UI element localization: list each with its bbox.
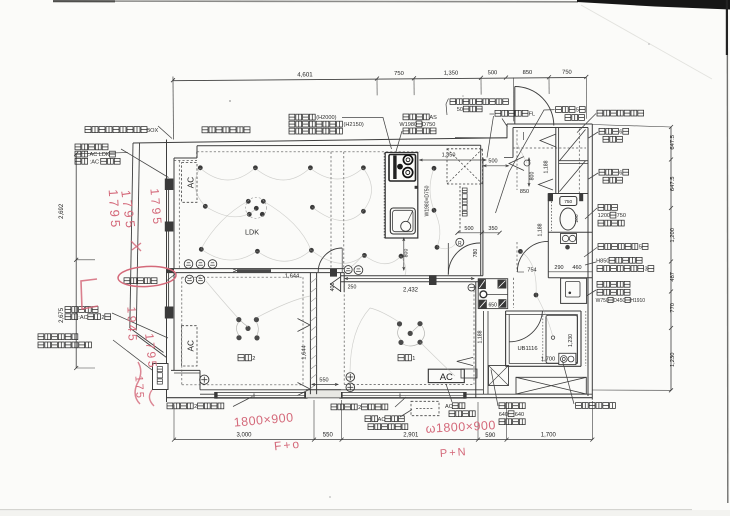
svg-text:(H2150): (H2150) [343,122,363,128]
svg-text:650: 650 [489,302,498,308]
svg-text:1,200: 1,200 [670,228,676,243]
svg-text:780: 780 [473,249,479,258]
svg-text:500: 500 [488,158,497,164]
svg-text:W1980: W1980 [399,122,417,128]
svg-text:2,901: 2,901 [403,433,419,439]
svg-text:647.5: 647.5 [670,135,676,150]
svg-text:487: 487 [670,272,676,282]
svg-text:D450: D450 [613,298,625,304]
svg-text::AC: :AC [90,159,99,165]
svg-text:4,601: 4,601 [297,71,313,78]
svg-text:LDK: LDK [245,227,259,236]
svg-text:647.5: 647.5 [670,177,676,192]
svg-text:640: 640 [499,412,508,418]
svg-text:H850: H850 [596,258,609,264]
svg-text:200: 200 [574,214,580,222]
svg-text:2: 2 [252,356,255,362]
svg-text:3: 3 [644,267,647,273]
svg-text:290: 290 [554,265,563,271]
svg-text:1,350: 1,350 [442,153,456,159]
svg-text:P+N: P+N [440,446,468,460]
svg-text:(H2000): (H2000) [316,115,336,121]
svg-text:750: 750 [394,71,404,77]
svg-text:2: 2 [101,315,104,321]
svg-text::AC: :AC [78,315,87,321]
svg-text:750: 750 [564,199,572,205]
svg-text:W1980×D750: W1980×D750 [424,185,430,216]
svg-text:3,000: 3,000 [236,433,252,439]
svg-text:1945: 1945 [124,306,139,343]
svg-text::AC LDK: :AC LDK [88,152,110,158]
svg-text:1200: 1200 [598,213,610,219]
svg-text:350: 350 [488,226,497,232]
svg-text:750: 750 [617,213,626,219]
svg-text:50: 50 [457,107,463,113]
svg-text:400: 400 [330,283,336,292]
svg-text:500: 500 [488,70,498,76]
svg-text:550: 550 [319,378,328,384]
svg-text:W750: W750 [596,298,609,304]
svg-text:2,675: 2,675 [59,307,65,323]
svg-text:R: R [458,241,462,247]
svg-text:800: 800 [404,249,410,258]
svg-text:1,350: 1,350 [444,71,459,77]
svg-text:1,230: 1,230 [670,353,676,368]
svg-text:500: 500 [464,226,473,232]
svg-text:850: 850 [523,70,533,76]
svg-text:800: 800 [530,172,536,181]
svg-text:2: 2 [194,404,197,410]
svg-text:1: 1 [412,356,415,362]
svg-text:1,188: 1,188 [477,330,483,343]
svg-text:754: 754 [527,268,536,274]
svg-text:2: 2 [358,405,361,411]
svg-text:6: 6 [619,129,622,135]
svg-text:FL: FL [529,111,536,117]
svg-text:5: 5 [576,108,579,114]
svg-text:1,644: 1,644 [285,273,300,279]
svg-text:D750: D750 [422,122,435,128]
svg-text:UB1116: UB1116 [517,346,537,352]
svg-text:2,692: 2,692 [59,203,65,219]
svg-text:750: 750 [562,70,572,76]
svg-text:2,432: 2,432 [403,287,419,293]
svg-text:550: 550 [323,433,334,439]
svg-text:H1910: H1910 [630,298,645,304]
svg-text:640: 640 [515,412,524,418]
svg-text:F+o: F+o [273,437,301,454]
svg-text:1,700: 1,700 [541,433,557,439]
svg-text:AC: AC [440,372,453,383]
svg-text:1,700: 1,700 [541,356,556,362]
svg-text:AC: AC [445,404,453,410]
svg-text:250: 250 [348,285,357,291]
svg-text:590: 590 [485,433,496,439]
svg-text:6: 6 [619,170,622,176]
svg-text:1,188: 1,188 [538,223,544,236]
svg-text:AC: AC [187,340,196,351]
svg-text:AC: AC [378,417,386,423]
svg-text:850: 850 [520,189,529,195]
svg-text:1,644: 1,644 [302,344,308,359]
svg-text:5: 5 [639,245,642,251]
svg-text:AS: AS [429,115,437,121]
svg-text:BOX: BOX [146,128,158,134]
svg-text:1,188: 1,188 [544,160,550,173]
svg-text:AC: AC [187,177,196,188]
svg-text:770: 770 [670,303,676,313]
svg-text:1,230: 1,230 [568,334,574,347]
svg-text:460: 460 [572,265,581,271]
